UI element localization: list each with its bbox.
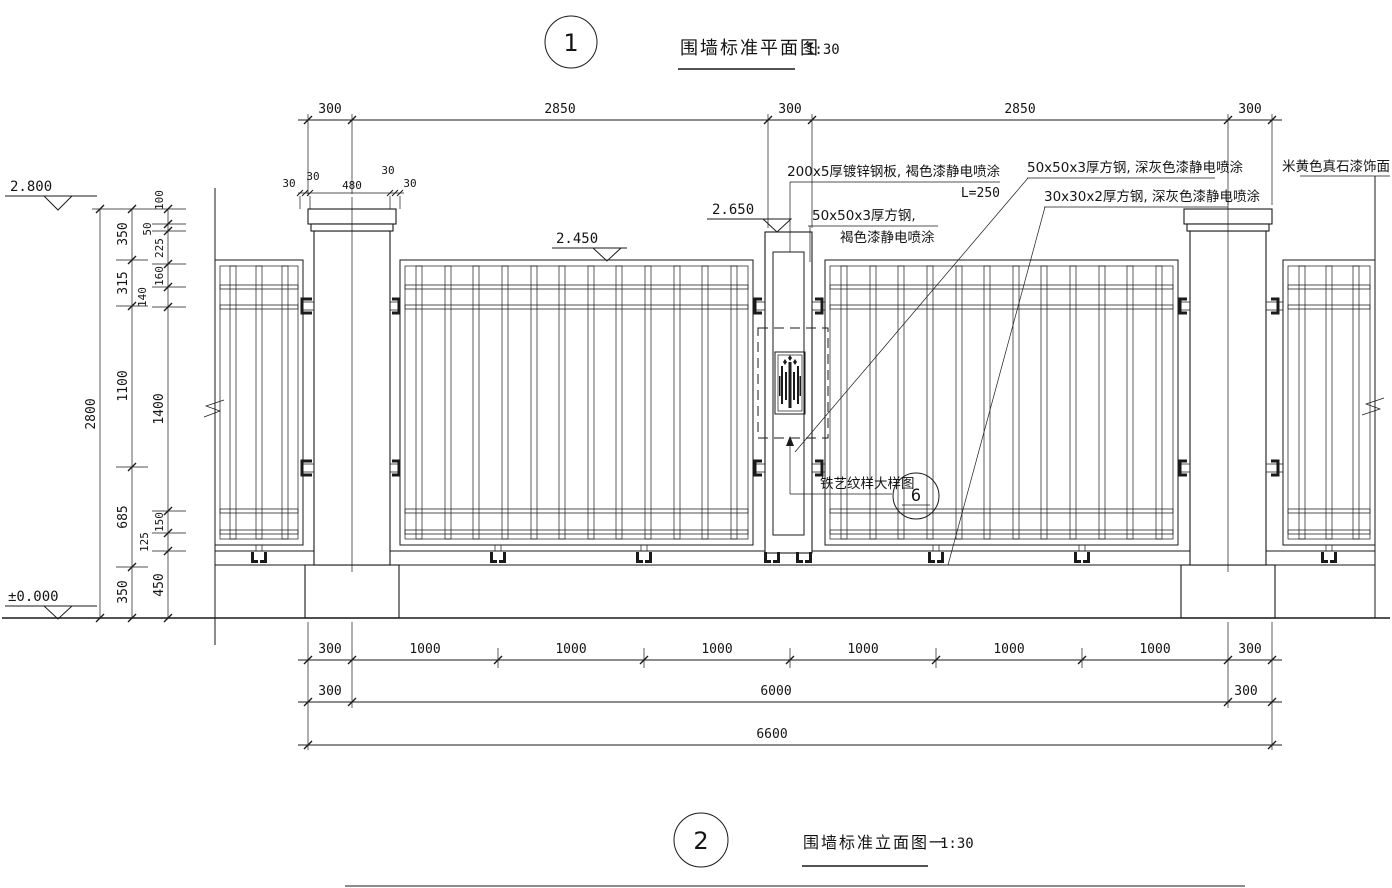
view-scale: 1:30 (806, 42, 840, 58)
panel-frame-inner (1288, 266, 1370, 539)
bottom-dimension-rows: 300 1000 1000 1000 1000 1000 1000 300 30… (298, 622, 1282, 750)
dim-value: 6000 (760, 684, 791, 699)
pillar-cap-dimensions: 30 30 480 30 30 (282, 164, 416, 209)
elevation-mark-2650: 2.650 (707, 202, 791, 232)
dim-value: 30 (403, 177, 416, 190)
detail-number: 6 (911, 486, 921, 506)
note-steel-plate: 200x5厚镀锌钢板, 褐色漆静电喷涂 L=250 (787, 163, 1000, 201)
dim-value: 450 (152, 573, 167, 596)
dim-value: 6600 (756, 727, 787, 742)
dim-value: 300 (318, 102, 341, 117)
dim-value: 480 (342, 179, 362, 192)
left-dimension-chains: 2800 350 315 1100 685 350 100 50 225 160… (84, 190, 186, 622)
panel-bars (416, 266, 737, 539)
panel-frame-inner (220, 266, 298, 539)
panel-frame-inner (830, 266, 1173, 539)
level-triangle (763, 219, 791, 232)
dim-value: 350 (116, 580, 131, 603)
dim-value: 1000 (847, 642, 878, 657)
right-pillar (1181, 199, 1275, 618)
dim-value: 1000 (701, 642, 732, 657)
level-triangle (44, 606, 72, 619)
pillar-base (305, 565, 399, 618)
note-text-line1: 50x50x3厚方钢, (812, 208, 916, 224)
dim-value: 30 (282, 177, 295, 190)
note-stone-finish: 米黄色真石漆饰面 (1282, 158, 1390, 176)
dim-value: 1000 (1139, 642, 1170, 657)
view-title: 围墙标准立面图一 (803, 833, 947, 852)
view-2-title: 2 围墙标准立面图一 1:30 (674, 813, 974, 867)
level-value: 2.650 (712, 202, 754, 218)
note-tube50-brown: 50x50x3厚方钢, 褐色漆静电喷涂 (808, 208, 938, 262)
dim-value: 125 (138, 532, 151, 552)
note-text: 50x50x3厚方钢, 深灰色漆静电喷涂 (1027, 159, 1244, 176)
panel-bars (230, 266, 288, 539)
panel-frame-outer (1283, 260, 1375, 545)
view-number: 2 (693, 827, 708, 855)
dim-value: 300 (318, 642, 341, 657)
fence-panel-a (400, 260, 753, 545)
elevation-mark-2450: 2.450 (552, 231, 627, 261)
dim-value: 140 (136, 287, 149, 307)
dim-value: 685 (116, 505, 131, 528)
level-value: 2.800 (10, 179, 52, 195)
dim-value: 30 (306, 170, 319, 183)
dim-value: 150 (153, 512, 166, 532)
panel-rails (830, 285, 1173, 534)
leader-line (948, 207, 1045, 565)
panel-rails (1288, 285, 1370, 534)
dim-value: 300 (1234, 684, 1257, 699)
elevation-mark-2800: 2.800 (5, 179, 97, 210)
view-number: 1 (563, 29, 578, 57)
dim-value: 1000 (409, 642, 440, 657)
dim-value: 300 (1238, 642, 1261, 657)
fence-panel-b (825, 260, 1178, 545)
elevation-mark-0000: ±0.000 (5, 589, 97, 619)
right-break-symbol (1362, 398, 1384, 415)
elevation-drawing: 1 围墙标准平面图 1:30 300 2850 300 2850 300 30 … (0, 0, 1392, 888)
panel-frame-inner (405, 266, 748, 539)
dim-value: 225 (153, 238, 166, 258)
view-1-title: 1 围墙标准平面图 1:30 (545, 16, 840, 69)
panel-rails (405, 285, 748, 534)
detail-label: 铁艺纹样大样图 (820, 476, 915, 492)
note-length: L=250 (961, 186, 1000, 201)
view-scale: 1:30 (940, 836, 974, 852)
dim-value: 300 (778, 102, 801, 117)
note-text-line2: 褐色漆静电喷涂 (840, 229, 935, 246)
fence-panel-right-partial (1283, 260, 1375, 545)
dimension-lines (298, 660, 1282, 745)
level-value: ±0.000 (8, 589, 59, 605)
dim-value: 300 (1238, 102, 1261, 117)
note-text: 200x5厚镀锌钢板, 褐色漆静电喷涂 (787, 163, 1000, 180)
cad-sheet: 1 围墙标准平面图 1:30 300 2850 300 2850 300 30 … (0, 0, 1392, 888)
level-triangle (44, 196, 72, 210)
dim-value: 1000 (555, 642, 586, 657)
extension-lines (300, 196, 400, 209)
panel-frame-outer (825, 260, 1178, 545)
dim-value: 160 (153, 266, 166, 286)
level-value: 2.450 (556, 231, 598, 247)
panel-frame-outer (400, 260, 753, 545)
panel-bars (1299, 266, 1359, 539)
view-title: 围墙标准平面图 (680, 38, 820, 59)
dim-value: 300 (318, 684, 341, 699)
gate-post (758, 182, 828, 553)
left-break-symbol (204, 400, 224, 417)
panel-rails (220, 285, 298, 534)
fence-panel-left-partial (215, 260, 303, 545)
dim-value: 2850 (544, 102, 575, 117)
dim-value: 30 (381, 164, 394, 177)
note-text: 30x30x2厚方钢, 深灰色漆静电喷涂 (1044, 188, 1261, 205)
dim-value: 350 (116, 222, 131, 245)
dim-total-height: 2800 (84, 398, 99, 429)
panel-frame-outer (215, 260, 303, 545)
dim-value: 1100 (116, 370, 131, 401)
pillar-base (1181, 565, 1275, 618)
dim-value: 1400 (152, 393, 167, 424)
dim-value: 50 (141, 222, 154, 235)
note-text: 米黄色真石漆饰面 (1282, 158, 1390, 175)
anchor-plates (251, 552, 1337, 563)
dim-value: 315 (116, 271, 131, 294)
dim-value: 1000 (993, 642, 1024, 657)
dim-value: 2850 (1004, 102, 1035, 117)
dim-value: 100 (153, 190, 166, 210)
level-triangle (593, 248, 621, 261)
left-pillar (305, 197, 399, 618)
panel-bars (841, 266, 1162, 539)
